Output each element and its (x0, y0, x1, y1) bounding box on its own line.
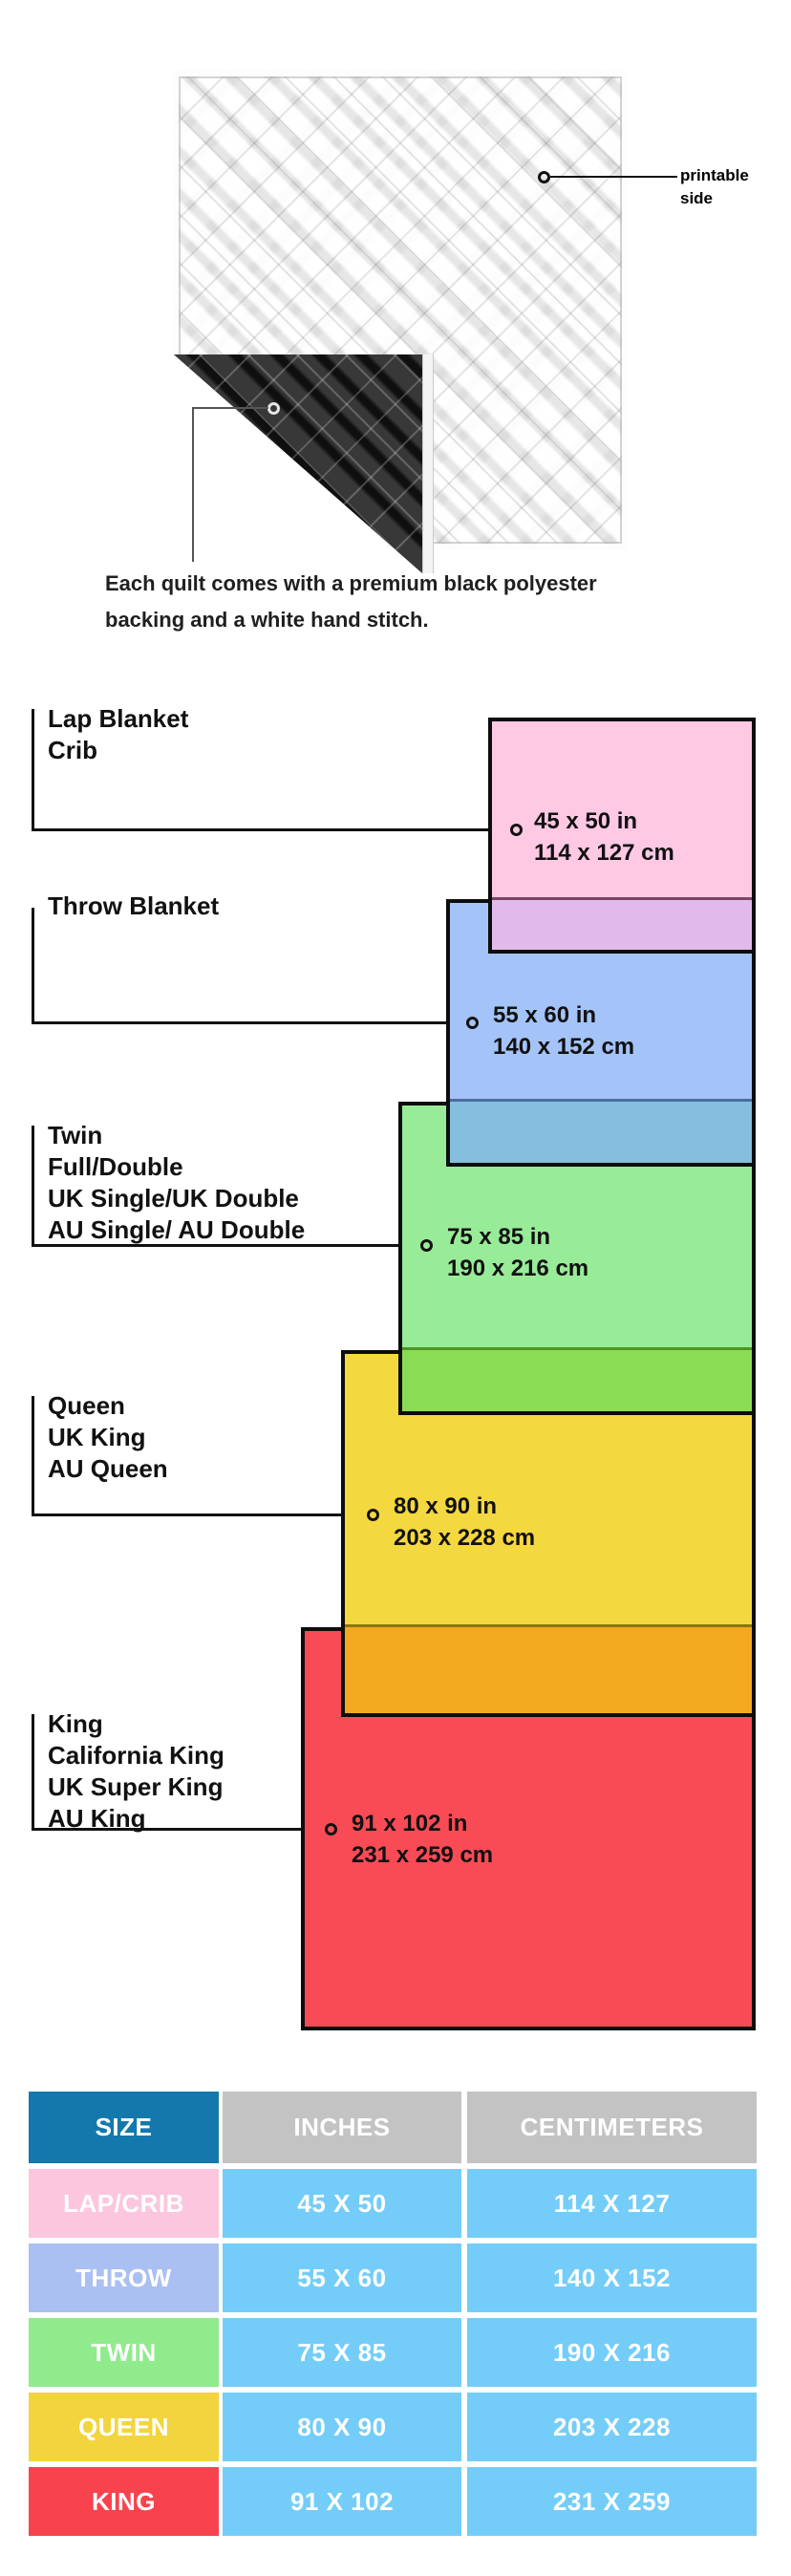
backing-callout-circle (267, 402, 280, 415)
printable-side-callout-line (550, 176, 677, 178)
printable-side-label-line2: side (680, 187, 713, 210)
overlap-lap-over-throw (492, 897, 752, 950)
printable-side-label-line1: printable (680, 164, 749, 187)
group-twin-leader-vline (32, 1126, 34, 1247)
overlap-twin-over-queen (402, 1347, 752, 1411)
group-lap-label-1: Lap Blanket (48, 703, 188, 735)
table-row-lap-cm-cell: 114 X 127 (467, 2169, 757, 2238)
table-header-cell-size: SIZE (29, 2092, 219, 2163)
group-queen-label-2: UK King (48, 1422, 146, 1453)
group-king-label-2: California King (48, 1740, 224, 1771)
overlap-throw-over-twin (450, 1099, 752, 1163)
backing-callout-vline (192, 407, 194, 562)
table-row-queen-inches-cell: 80 X 90 (223, 2393, 461, 2461)
group-twin-leader-circle (420, 1239, 433, 1252)
table-row-twin-cm-cell: 190 X 216 (467, 2318, 757, 2387)
group-king-leader-vline (32, 1714, 34, 1831)
group-queen-label-1: Queen (48, 1390, 125, 1422)
table-header-cell-inches: INCHES (223, 2092, 461, 2163)
group-king-size-inches: 91 x 102 in (352, 1808, 467, 1839)
table-row-throw-inches-cell: 55 X 60 (223, 2243, 461, 2312)
table-row-lap-size-cell: LAP/CRIB (29, 2169, 219, 2238)
group-lap-label-2: Crib (48, 735, 97, 766)
group-twin-label-2: Full/Double (48, 1151, 183, 1183)
table-row-queen-cm-cell: 203 X 228 (467, 2393, 757, 2461)
group-lap-leader-vline (32, 709, 34, 831)
table-header-cell-centimeters: CENTIMETERS (467, 2092, 757, 2163)
group-king-size-cm: 231 x 259 cm (352, 1839, 493, 1871)
table-row-twin-size-cell: TWIN (29, 2318, 219, 2387)
group-king-leader-hline (32, 1828, 326, 1831)
group-throw-size-cm: 140 x 152 cm (493, 1031, 634, 1063)
group-king-label-3: UK Super King (48, 1771, 223, 1803)
printable-side-callout-circle (538, 171, 550, 183)
group-throw-label-1: Throw Blanket (48, 891, 219, 922)
group-twin-label-4: AU Single/ AU Double (48, 1214, 305, 1246)
caption-line1: Each quilt comes with a premium black po… (105, 569, 597, 598)
table-row-queen-size-cell: QUEEN (29, 2393, 219, 2461)
group-queen-leader-vline (32, 1396, 34, 1516)
group-queen-size-inches: 80 x 90 in (394, 1491, 497, 1522)
overlap-queen-over-king (345, 1624, 752, 1713)
group-twin-label-1: Twin (48, 1120, 102, 1151)
group-lap-size-inches: 45 x 50 in (534, 805, 637, 837)
group-queen-size-cm: 203 x 228 cm (394, 1522, 535, 1554)
group-lap-leader-circle (510, 824, 523, 836)
group-throw-leader-vline (32, 908, 34, 1024)
group-queen-leader-circle (367, 1509, 379, 1521)
quilt-backing-folded-corner (174, 354, 422, 573)
group-twin-leader-hline (32, 1244, 421, 1247)
group-queen-label-3: AU Queen (48, 1453, 168, 1485)
backing-callout-hline (192, 407, 268, 409)
group-throw-size-inches: 55 x 60 in (493, 999, 596, 1031)
table-row-throw-size-cell: THROW (29, 2243, 219, 2312)
group-throw-leader-hline (32, 1021, 467, 1024)
table-row-king-cm-cell: 231 X 259 (467, 2467, 757, 2536)
group-twin-size-cm: 190 x 216 cm (447, 1253, 588, 1284)
table-row-king-inches-cell: 91 X 102 (223, 2467, 461, 2536)
group-queen-leader-hline (32, 1513, 368, 1516)
table-row-twin-inches-cell: 75 X 85 (223, 2318, 461, 2387)
group-throw-leader-circle (466, 1017, 479, 1029)
group-king-leader-circle (325, 1823, 337, 1835)
group-king-label-1: King (48, 1708, 103, 1740)
quilt-fold-binding-strip (422, 354, 434, 573)
group-lap-size-cm: 114 x 127 cm (534, 837, 674, 869)
group-twin-size-inches: 75 x 85 in (447, 1221, 550, 1253)
group-lap-leader-hline (32, 828, 510, 831)
table-row-king-size-cell: KING (29, 2467, 219, 2536)
table-row-lap-inches-cell: 45 X 50 (223, 2169, 461, 2238)
caption-line2: backing and a white hand stitch. (105, 606, 429, 634)
group-twin-label-3: UK Single/UK Double (48, 1183, 299, 1214)
size-chart-infographic: printable side Each quilt comes with a p… (0, 0, 791, 2576)
table-row-throw-cm-cell: 140 X 152 (467, 2243, 757, 2312)
